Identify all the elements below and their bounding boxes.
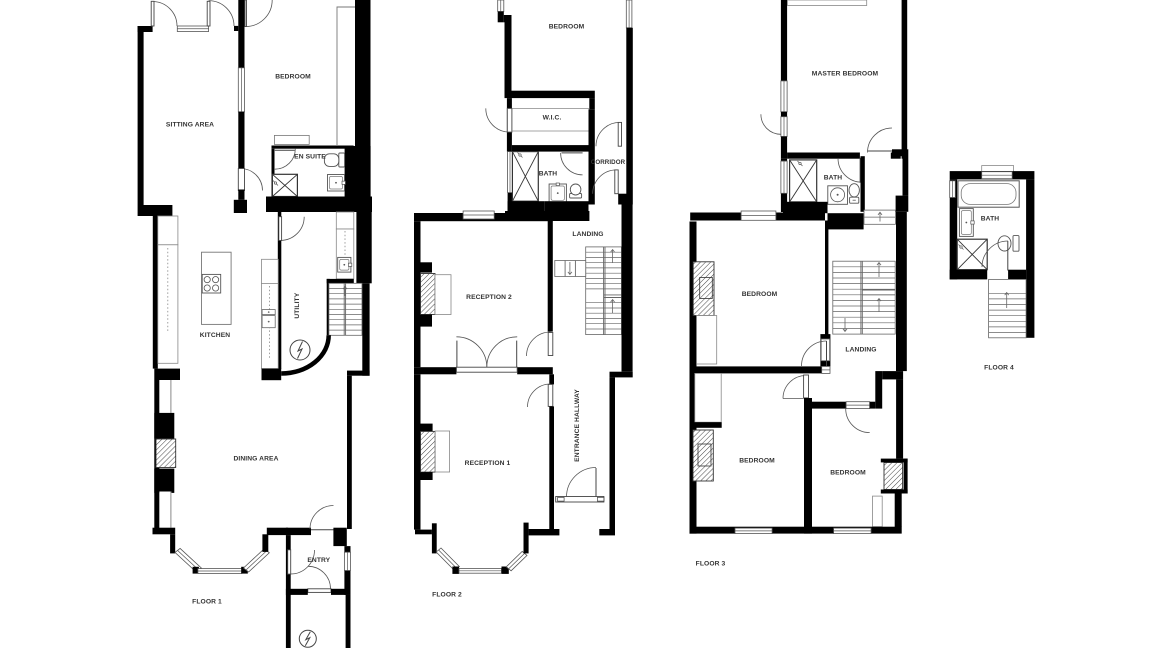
svg-text:EN SUITE: EN SUITE bbox=[294, 154, 326, 161]
svg-text:BATH: BATH bbox=[824, 175, 843, 182]
svg-text:RECEPTION 2: RECEPTION 2 bbox=[466, 294, 512, 301]
svg-text:W.I.C.: W.I.C. bbox=[543, 115, 562, 122]
svg-text:SITTING AREA: SITTING AREA bbox=[166, 122, 214, 129]
svg-text:BEDROOM: BEDROOM bbox=[739, 458, 775, 465]
svg-text:FLOOR 4: FLOOR 4 bbox=[984, 365, 1014, 372]
svg-text:LANDING: LANDING bbox=[845, 347, 876, 354]
svg-text:BATH: BATH bbox=[539, 171, 558, 178]
svg-text:FLOOR 3: FLOOR 3 bbox=[696, 561, 726, 568]
svg-text:KITCHEN: KITCHEN bbox=[200, 332, 230, 339]
svg-text:BEDROOM: BEDROOM bbox=[742, 291, 778, 298]
svg-text:LANDING: LANDING bbox=[572, 231, 603, 238]
svg-text:FLOOR 1: FLOOR 1 bbox=[192, 599, 222, 606]
svg-text:RECEPTION 1: RECEPTION 1 bbox=[465, 460, 511, 467]
svg-text:CORRIDOR: CORRIDOR bbox=[591, 159, 626, 166]
svg-text:UTILITY: UTILITY bbox=[294, 292, 301, 318]
svg-text:BATH: BATH bbox=[981, 216, 1000, 223]
svg-text:DINING AREA: DINING AREA bbox=[233, 456, 278, 463]
svg-text:FLOOR 2: FLOOR 2 bbox=[432, 592, 462, 599]
svg-text:BEDROOM: BEDROOM bbox=[549, 24, 585, 31]
svg-text:ENTRANCE HALLWAY: ENTRANCE HALLWAY bbox=[574, 389, 581, 462]
svg-text:BEDROOM: BEDROOM bbox=[830, 470, 866, 477]
svg-text:MASTER BEDROOM: MASTER BEDROOM bbox=[812, 71, 879, 78]
svg-text:BEDROOM: BEDROOM bbox=[275, 74, 311, 81]
svg-text:ENTRY: ENTRY bbox=[307, 557, 330, 564]
